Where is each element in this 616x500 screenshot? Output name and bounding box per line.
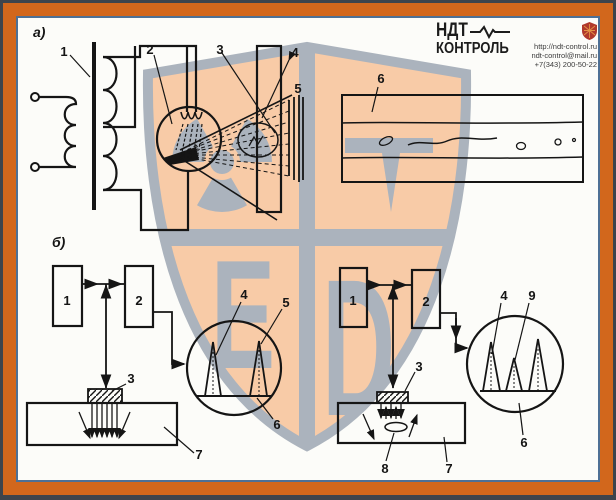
callout-screen-right: 6 xyxy=(520,435,527,450)
scanned-figure-frame: Е D а) xyxy=(0,0,616,500)
defect-pore-2 xyxy=(555,139,561,145)
callout-initial-pulse-left: 4 xyxy=(240,287,248,302)
pulse-line-icon xyxy=(469,25,511,39)
ultrasound-beam-left xyxy=(79,403,130,438)
callout-transducer-right: 3 xyxy=(415,359,422,374)
callout-receiver-left: 2 xyxy=(135,293,142,308)
defect-pore-1 xyxy=(517,143,526,150)
watermark-shield: Е D xyxy=(145,44,467,456)
email-text: ndt-control@mail.ru xyxy=(531,51,597,60)
callout-transformer: 1 xyxy=(60,44,67,59)
callout-radiograph: 6 xyxy=(377,71,384,86)
callout-xray-tube: 2 xyxy=(146,42,153,57)
scope-cable-right xyxy=(440,313,467,348)
callout-specimen-left: 7 xyxy=(195,447,202,462)
transducer-right xyxy=(377,392,408,403)
ultrasound-beam-right xyxy=(363,403,417,439)
callout-receiver-right: 2 xyxy=(422,294,429,309)
callout-screen-left: 6 xyxy=(273,417,280,432)
section-b-label: б) xyxy=(52,234,66,250)
figure-artwork: Е D а) xyxy=(0,0,616,500)
brand-logo: НДТ КОНТРОЛЬ xyxy=(436,22,525,58)
callout-transducer-left: 3 xyxy=(127,371,134,386)
callout-defect-echo: 9 xyxy=(528,288,535,303)
brand-name-top: НДТ xyxy=(436,22,468,40)
callout-specimen: 4 xyxy=(291,45,299,60)
contact-block: http://ndt-control.ru ndt-control@mail.r… xyxy=(531,42,597,69)
phone-text: +7(343) 200-50-22 xyxy=(531,60,597,69)
brand-name-bottom: КОНТРОЛЬ xyxy=(436,40,509,57)
callout-xray-beam: 3 xyxy=(216,42,223,57)
scope-cable-left xyxy=(153,312,184,364)
internal-defect xyxy=(385,423,407,432)
logo-shield-icon xyxy=(582,22,597,40)
callout-generator-left: 1 xyxy=(63,293,70,308)
section-a-label: а) xyxy=(33,24,46,40)
watermark-letter-d: D xyxy=(322,238,395,456)
callout-specimen-right: 7 xyxy=(445,461,452,476)
callout-defect: 8 xyxy=(381,461,388,476)
oscilloscope-right xyxy=(467,316,563,412)
callout-bottom-echo: 5 xyxy=(282,295,289,310)
watermark-cross-horizontal xyxy=(145,229,467,246)
callout-film: 5 xyxy=(294,81,301,96)
brand-header: НДТ КОНТРОЛЬ http://ndt-control.ru ndt-c… xyxy=(436,22,597,69)
callout-initial-pulse-right: 4 xyxy=(500,288,508,303)
website-text: http://ndt-control.ru xyxy=(531,42,597,51)
transducer-left xyxy=(88,389,122,403)
defect-pore-3 xyxy=(573,139,576,142)
initial-pulse-peak-right xyxy=(483,342,500,391)
callout-generator-right: 1 xyxy=(349,293,356,308)
